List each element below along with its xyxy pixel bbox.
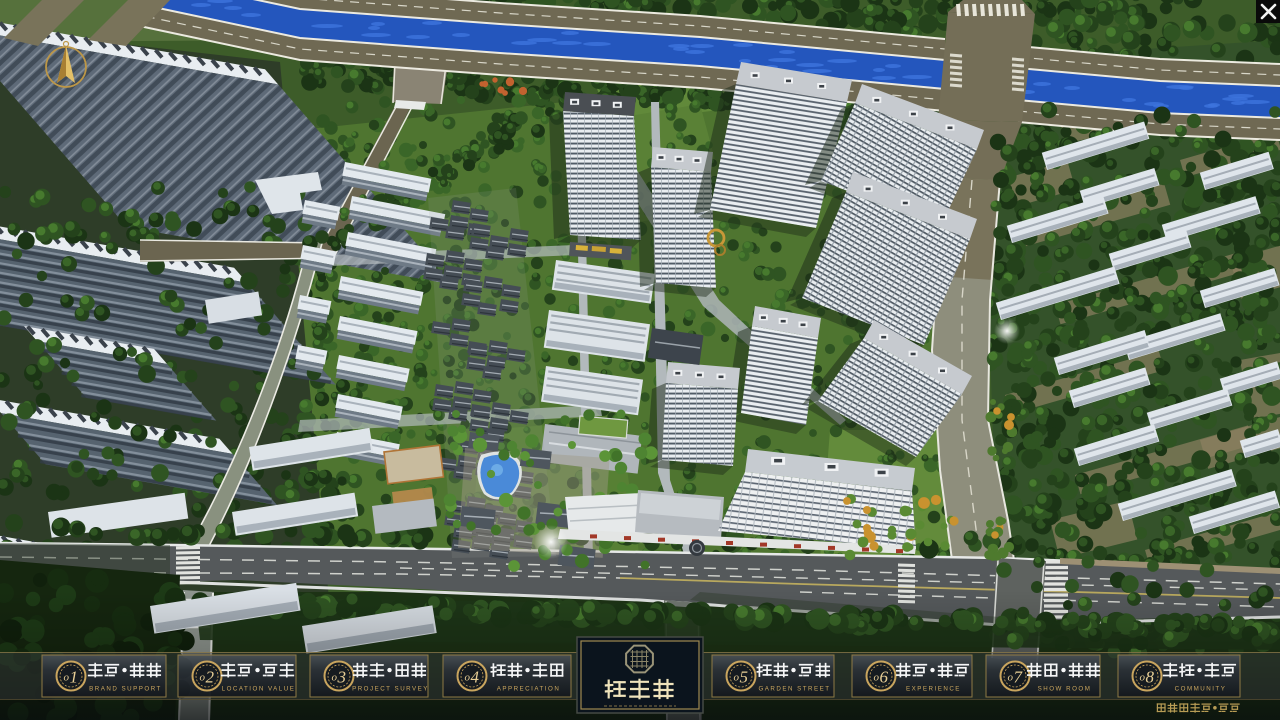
svg-text:BRAND SUPPORT: BRAND SUPPORT — [89, 686, 162, 693]
svg-text:3: 3 — [337, 668, 347, 687]
svg-text:LOCATION VALUE: LOCATION VALUE — [222, 686, 296, 693]
svg-text:4: 4 — [471, 668, 480, 687]
svg-text:1: 1 — [70, 668, 79, 687]
svg-text:2: 2 — [206, 668, 215, 687]
svg-text:PROJECT SURVEY: PROJECT SURVEY — [352, 686, 429, 693]
